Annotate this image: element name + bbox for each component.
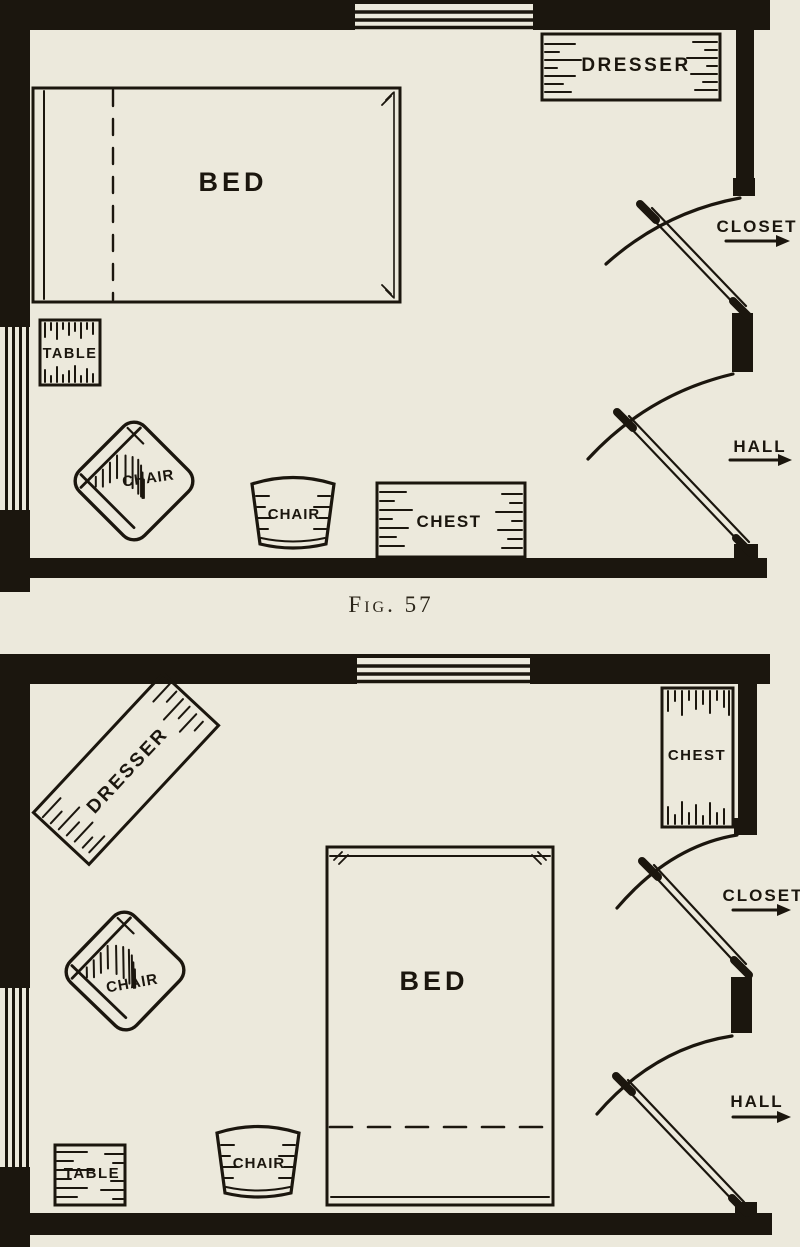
hall-door xyxy=(597,1036,747,1213)
chest: CHEST xyxy=(377,483,525,557)
side-chair: CHAIR xyxy=(217,1127,299,1198)
hall-direction: HALL xyxy=(730,437,792,466)
side-chair-label: CHAIR xyxy=(233,1155,286,1172)
bed-label: BED xyxy=(399,966,468,996)
wall xyxy=(738,684,757,833)
dresser-label: DRESSER xyxy=(581,55,690,76)
closet-label: CLOSET xyxy=(723,886,800,905)
wall xyxy=(732,313,753,372)
bed: BED xyxy=(33,88,400,302)
armchair: CHAIR xyxy=(60,906,190,1036)
bed-label: BED xyxy=(198,167,267,197)
wall xyxy=(30,1213,772,1235)
door-hinge xyxy=(642,861,749,975)
chest: CHEST xyxy=(662,688,733,827)
closet-door xyxy=(606,198,748,316)
dresser: DRESSER xyxy=(542,34,720,100)
door-leaf xyxy=(624,416,749,547)
floor-plan-top: BED DRESSER TABLE CHAIR CHAIR xyxy=(0,0,797,592)
door-swing-arc xyxy=(617,835,737,908)
dresser: DRESSER xyxy=(33,674,218,865)
window-symbol-top-wall xyxy=(357,658,530,684)
hall-arrow-icon xyxy=(733,1111,791,1123)
door-leaf xyxy=(649,865,746,969)
wall xyxy=(731,977,752,1033)
table-label: TABLE xyxy=(64,1165,120,1182)
figure-caption: Fig. 57 xyxy=(348,592,433,617)
armchair: CHAIR xyxy=(69,416,199,546)
closet-label: CLOSET xyxy=(717,217,798,236)
wall xyxy=(736,30,754,180)
chest-label: CHEST xyxy=(416,512,481,531)
armchair-label: CHAIR xyxy=(105,971,160,997)
closet-direction: CLOSET xyxy=(717,217,798,247)
dresser-label: DRESSER xyxy=(83,724,173,818)
hall-door xyxy=(588,374,751,553)
door-jamb xyxy=(734,818,757,835)
scanned-book-page: BED DRESSER TABLE CHAIR CHAIR xyxy=(0,0,800,1247)
door-leaf xyxy=(623,1080,744,1207)
wall xyxy=(30,558,767,578)
closet-arrow-icon xyxy=(726,235,790,247)
door-jamb xyxy=(733,178,755,196)
closet-door xyxy=(617,835,749,975)
table-label: TABLE xyxy=(43,346,98,362)
closet-direction: CLOSET xyxy=(723,886,800,916)
window-symbol-left-wall xyxy=(0,988,30,1167)
floor-plan-figure: BED DRESSER TABLE CHAIR CHAIR xyxy=(0,0,800,1247)
hall-label: HALL xyxy=(730,1092,783,1111)
armchair-label: CHAIR xyxy=(121,466,175,490)
side-chair: CHAIR xyxy=(252,478,334,549)
hall-label: HALL xyxy=(733,437,786,456)
table: TABLE xyxy=(55,1145,125,1205)
door-swing-arc xyxy=(588,374,733,459)
table: TABLE xyxy=(40,320,100,385)
side-chair-label: CHAIR xyxy=(268,506,321,523)
floor-plan-bottom: DRESSER CHEST CHAIR BED TABL xyxy=(0,654,800,1247)
armchair-symbol xyxy=(60,906,190,1036)
window-symbol-top-wall xyxy=(355,4,533,30)
door-hinge xyxy=(616,1076,747,1213)
bed: BED xyxy=(327,847,553,1205)
window-symbol-left-wall xyxy=(0,327,30,510)
chest-label: CHEST xyxy=(668,747,726,764)
hall-direction: HALL xyxy=(730,1092,791,1123)
closet-arrow-icon xyxy=(733,904,791,916)
